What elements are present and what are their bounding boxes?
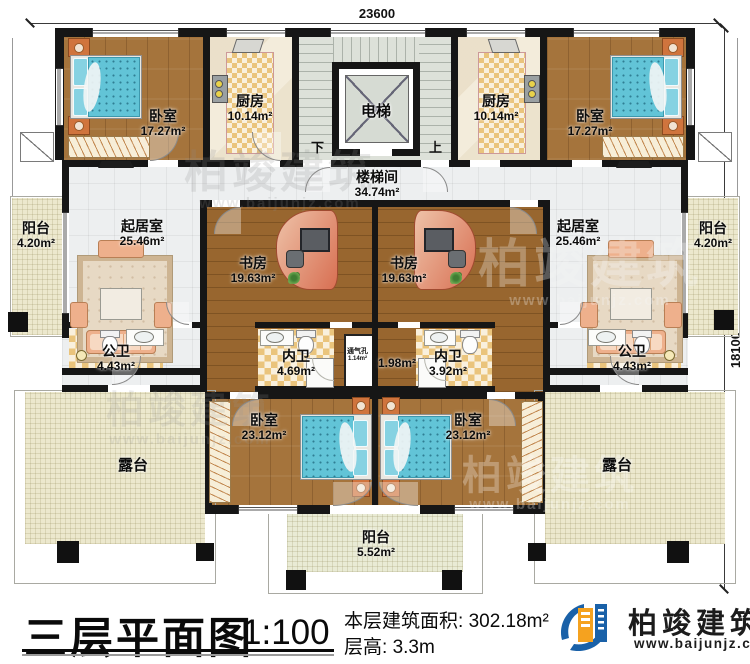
elevator-door-opening [360, 149, 392, 156]
lamp-icon [76, 350, 87, 361]
wall [543, 200, 550, 392]
window [573, 28, 660, 37]
room-label-bedroom-tl: 卧室 17.27m² [141, 109, 186, 138]
door-opening [212, 200, 240, 207]
wardrobe-icon [521, 401, 543, 503]
column-post [57, 541, 79, 563]
column-post [667, 541, 689, 563]
wall [372, 200, 378, 505]
coffee-table-icon [610, 288, 652, 320]
room-label-bedroom-bl: 卧室 23.12m² [242, 413, 287, 442]
sink-basin [134, 331, 154, 343]
room-label-balcony-r: 阳台 4.20m² [694, 221, 732, 250]
room-label-study-r: 书房 19.63m² [382, 256, 427, 285]
title-underline [22, 649, 334, 652]
room-label-stairwell: 楼梯间 34.74m² [355, 170, 400, 199]
eave-line [737, 38, 738, 196]
window [226, 28, 286, 37]
wardrobe-icon [209, 401, 231, 503]
vent-shaft [344, 334, 375, 394]
computer-icon [300, 228, 330, 252]
column-post [442, 570, 462, 590]
dimension-top-value: 23600 [359, 6, 395, 21]
eave-line [12, 38, 13, 196]
door-opening [330, 505, 420, 514]
loveseat-icon [608, 240, 654, 258]
sink-basin [266, 332, 284, 343]
wardrobe-icon [68, 136, 150, 158]
door-opening [398, 322, 420, 328]
terrace-outline [534, 390, 736, 584]
wardrobe-icon [602, 136, 684, 158]
company-logo-icon [556, 596, 622, 654]
door-opening [510, 200, 538, 207]
sink-basin [430, 332, 448, 343]
armchair-icon [70, 302, 88, 328]
door-opening [487, 392, 515, 399]
terrace-outline [14, 390, 216, 584]
room-label-terrace-l: 露台 [118, 458, 148, 475]
tv-icon [98, 161, 134, 168]
wall [200, 200, 207, 392]
company-logo-website: www.baijunjz.com [634, 636, 750, 651]
room-label-kitchen-l: 厨房 10.14m² [228, 94, 273, 123]
door-opening [303, 160, 331, 167]
window [62, 212, 69, 314]
stair-up-label: 上 [429, 137, 442, 156]
stair-treads-top [333, 36, 419, 63]
door-opening [600, 385, 642, 392]
door-opening [108, 385, 150, 392]
door-opening [230, 392, 258, 399]
column-post [528, 543, 546, 561]
window [466, 28, 526, 37]
floor-plan-canvas: 23600 18100 [0, 0, 750, 664]
room-label-bedroom-tr: 卧室 17.27m² [568, 109, 613, 138]
room-label-bedroom-br: 卧室 23.12m² [446, 413, 491, 442]
room-label-living-r: 起居室 25.46m² [556, 219, 601, 248]
room-label-vent: 通气孔 1.14m² [345, 348, 370, 362]
door-opening [148, 160, 178, 167]
chair-icon [286, 250, 304, 268]
room-label-balcony-b: 阳台 5.52m² [357, 530, 395, 559]
armchair-icon [580, 302, 598, 328]
room-label-vent-r-area: 1.98m² [378, 357, 416, 370]
column-post [8, 312, 28, 332]
sink-icon [488, 39, 521, 53]
room-label-balcony-l: 阳台 4.20m² [17, 221, 55, 250]
column-post [714, 310, 734, 330]
room-label-kitchen-r: 厨房 10.14m² [474, 94, 519, 123]
floor-height-text: 层高: 3.3m [344, 632, 435, 659]
stove-burner [215, 80, 223, 88]
window [454, 505, 514, 514]
wall [378, 322, 495, 328]
sink-basin [596, 331, 616, 343]
tv-icon [616, 161, 652, 168]
window [56, 68, 63, 126]
stove-burner [215, 90, 223, 98]
room-label-bath-public-l: 公卫 4.43m² [97, 344, 135, 373]
window-symbol [698, 132, 732, 162]
coffee-table-icon [100, 288, 142, 320]
plan-scale: 1:100 [242, 613, 330, 653]
plant-icon [450, 272, 462, 284]
wall [255, 322, 372, 328]
window [92, 28, 179, 37]
lamp-icon [664, 350, 675, 361]
door-opening [421, 160, 449, 167]
sink-icon [232, 39, 265, 53]
window [238, 505, 298, 514]
nightstand-icon [352, 397, 370, 415]
column-post [286, 570, 306, 590]
column-post [196, 543, 214, 561]
window [681, 212, 688, 314]
room-label-bath-private-r: 内卫 3.92m² [429, 349, 467, 378]
pillow-icon [664, 58, 679, 86]
room-label-bath-private-l: 内卫 4.69m² [277, 349, 315, 378]
door-opening [470, 160, 500, 167]
door-opening [250, 160, 280, 167]
title-underline-shadow [22, 654, 334, 656]
plant-icon [288, 272, 300, 284]
window [330, 28, 426, 37]
floor-area-text: 本层建筑面积: 302.18m² [344, 606, 549, 633]
room-label-living-l: 起居室 25.46m² [120, 219, 165, 248]
room-label-study-l: 书房 19.63m² [231, 256, 276, 285]
door-opening [572, 160, 602, 167]
dimension-right-value: 18100 [728, 332, 743, 368]
armchair-icon [664, 302, 682, 328]
stove-burner [528, 90, 536, 98]
logo-building-icon [556, 596, 622, 654]
stove-burner [528, 80, 536, 88]
window [687, 68, 694, 126]
wall [292, 36, 299, 160]
stair-down-label: 下 [311, 137, 324, 156]
room-label-terrace-r: 露台 [602, 458, 632, 475]
dimension-top-line [30, 23, 718, 24]
elevator-label: 电梯 [361, 100, 391, 121]
wall [540, 36, 547, 160]
chair-icon [448, 250, 466, 268]
wall [203, 36, 210, 160]
room-label-bath-public-r: 公卫 4.43m² [613, 344, 651, 373]
door-opening [330, 322, 352, 328]
wall [451, 36, 458, 160]
computer-icon [424, 228, 454, 252]
nightstand-icon [382, 397, 400, 415]
window-symbol [20, 132, 54, 162]
